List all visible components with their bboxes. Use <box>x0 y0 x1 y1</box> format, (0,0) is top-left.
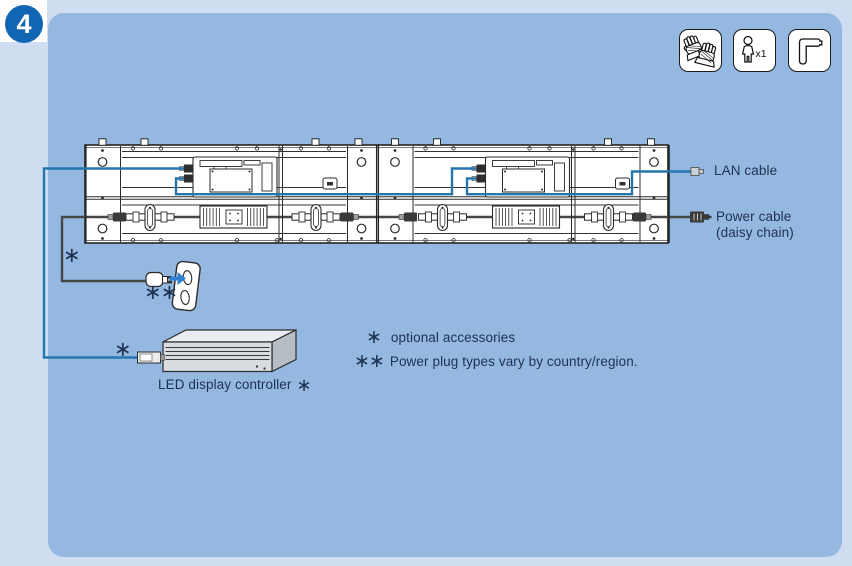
note-optional-accessories: ∗ optional accessories <box>366 328 515 347</box>
controller-label-marker: ∗ <box>297 376 312 394</box>
note1-text: optional accessories <box>391 330 515 345</box>
controller-label-text: LED display controller <box>158 377 292 393</box>
power-cable-callout-icon <box>690 212 712 223</box>
note2-marker: ∗∗ <box>354 352 384 371</box>
note-power-plug-types: ∗∗ Power plug types vary by country/regi… <box>354 352 638 371</box>
power-cable-label-line2: (daisy chain) <box>716 225 794 241</box>
manual-page: 4 <box>0 0 852 566</box>
optional-marker-lan-cable: ∗ <box>114 339 132 360</box>
note1-marker: ∗ <box>366 328 382 347</box>
power-cable-label-line1: Power cable <box>716 209 794 225</box>
lan-cable-callout-icon <box>691 168 704 176</box>
lan-cable-label: LAN cable <box>714 163 777 179</box>
power-cable-label: Power cable (daisy chain) <box>716 209 794 240</box>
rj45-connector <box>138 352 165 363</box>
controller-label: LED display controller ∗ <box>158 376 312 394</box>
note-marker-power-plug: ∗∗ <box>144 282 177 303</box>
note2-text: Power plug types vary by country/region. <box>390 354 638 369</box>
wiring-diagram <box>0 0 852 566</box>
led-display-controller <box>163 330 296 372</box>
optional-marker-power-cable: ∗ <box>63 245 81 266</box>
led-panel-assembly <box>62 139 712 281</box>
